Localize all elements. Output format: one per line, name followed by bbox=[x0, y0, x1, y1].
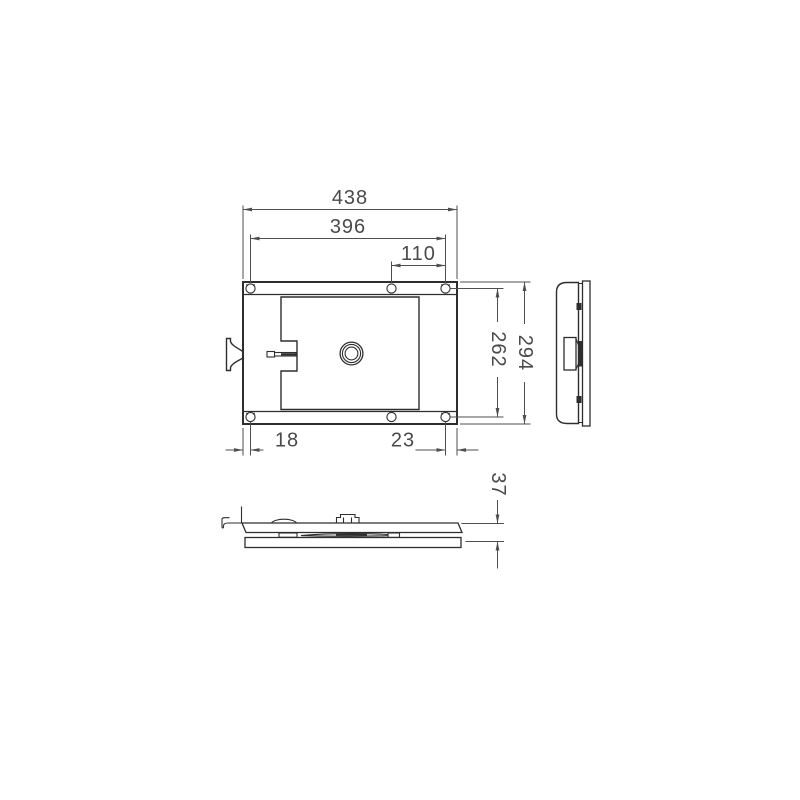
latch-bolt-dark bbox=[579, 341, 583, 367]
dimension-value: 438 bbox=[332, 187, 368, 209]
slot-right bbox=[388, 533, 400, 537]
screw-boss-bottom bbox=[577, 396, 582, 403]
hole-circle bbox=[387, 284, 396, 293]
dimension-value: 262 bbox=[487, 331, 509, 367]
spindle-hub-profile bbox=[337, 515, 360, 524]
screw-hole-bottom-left bbox=[246, 412, 255, 421]
arrowhead-top bbox=[496, 289, 500, 298]
arrowhead-down bbox=[496, 515, 500, 524]
back-plate-profile bbox=[583, 281, 591, 426]
dimension-left-hole-offset: 18 bbox=[226, 422, 300, 456]
screw-hole-top-left bbox=[246, 284, 255, 293]
arrowhead-top bbox=[523, 282, 527, 291]
arrowhead-up bbox=[496, 542, 500, 551]
bottom-view bbox=[222, 507, 462, 548]
arrowhead-right bbox=[448, 208, 457, 212]
arrowhead-bottom bbox=[523, 415, 527, 424]
extension-lines bbox=[462, 524, 505, 542]
latch-keeper-tab bbox=[227, 339, 244, 371]
spindle-boss-outer bbox=[340, 342, 363, 365]
arrowhead-outer-right bbox=[251, 448, 260, 452]
screw-hole-bottom-right bbox=[441, 412, 450, 421]
arrowhead-left bbox=[243, 208, 252, 212]
drawing-sheet: 438 396 110 294 262 18 bbox=[0, 0, 800, 800]
arrowhead-right bbox=[437, 237, 446, 241]
dimension-value: 110 bbox=[401, 243, 436, 265]
arrowhead-left bbox=[251, 237, 260, 241]
screw-boss-top bbox=[577, 303, 582, 310]
hole-circle bbox=[387, 412, 396, 421]
dimension-thickness: 37 bbox=[462, 468, 509, 569]
bolt-dark-bottom bbox=[336, 534, 367, 536]
screw-hole-bottom-middle bbox=[387, 412, 396, 421]
keeper-hook-profile bbox=[222, 518, 242, 528]
extension-lines bbox=[243, 422, 251, 456]
spindle-hub-detail bbox=[344, 518, 352, 524]
screw-hole-top-right bbox=[441, 284, 450, 293]
arrowhead-outer-left bbox=[437, 448, 446, 452]
dimension-value: 23 bbox=[391, 430, 415, 452]
dimension-right-hole-offset: 23 bbox=[391, 422, 479, 456]
dimension-value: 396 bbox=[330, 216, 366, 238]
dimension-value: 37 bbox=[487, 472, 509, 496]
latch-tab-profile bbox=[564, 338, 576, 371]
screw-hole-top-middle bbox=[387, 284, 396, 293]
arrowhead-right bbox=[437, 264, 446, 268]
dimension-value: 294 bbox=[514, 335, 536, 371]
bolt-dark-segment bbox=[281, 353, 296, 355]
extension-lines bbox=[446, 422, 458, 456]
arrowhead-bottom bbox=[496, 408, 500, 417]
dimension-value: 18 bbox=[275, 430, 299, 452]
side-view bbox=[557, 281, 591, 426]
bolt-head bbox=[267, 352, 275, 358]
arrowhead-outer-left bbox=[234, 448, 243, 452]
back-plate-bottom-profile bbox=[245, 538, 461, 548]
front-view bbox=[227, 282, 458, 424]
dimension-hole-span-right: 110 bbox=[392, 243, 446, 283]
dimension-hole-span-height: 262 bbox=[450, 289, 509, 418]
technical-drawing: 438 396 110 294 262 18 bbox=[0, 0, 800, 800]
arrowhead-outer-right bbox=[457, 448, 466, 452]
slot-left bbox=[279, 533, 297, 537]
case-bottom-profile bbox=[242, 523, 462, 533]
arrowhead-left bbox=[392, 264, 401, 268]
